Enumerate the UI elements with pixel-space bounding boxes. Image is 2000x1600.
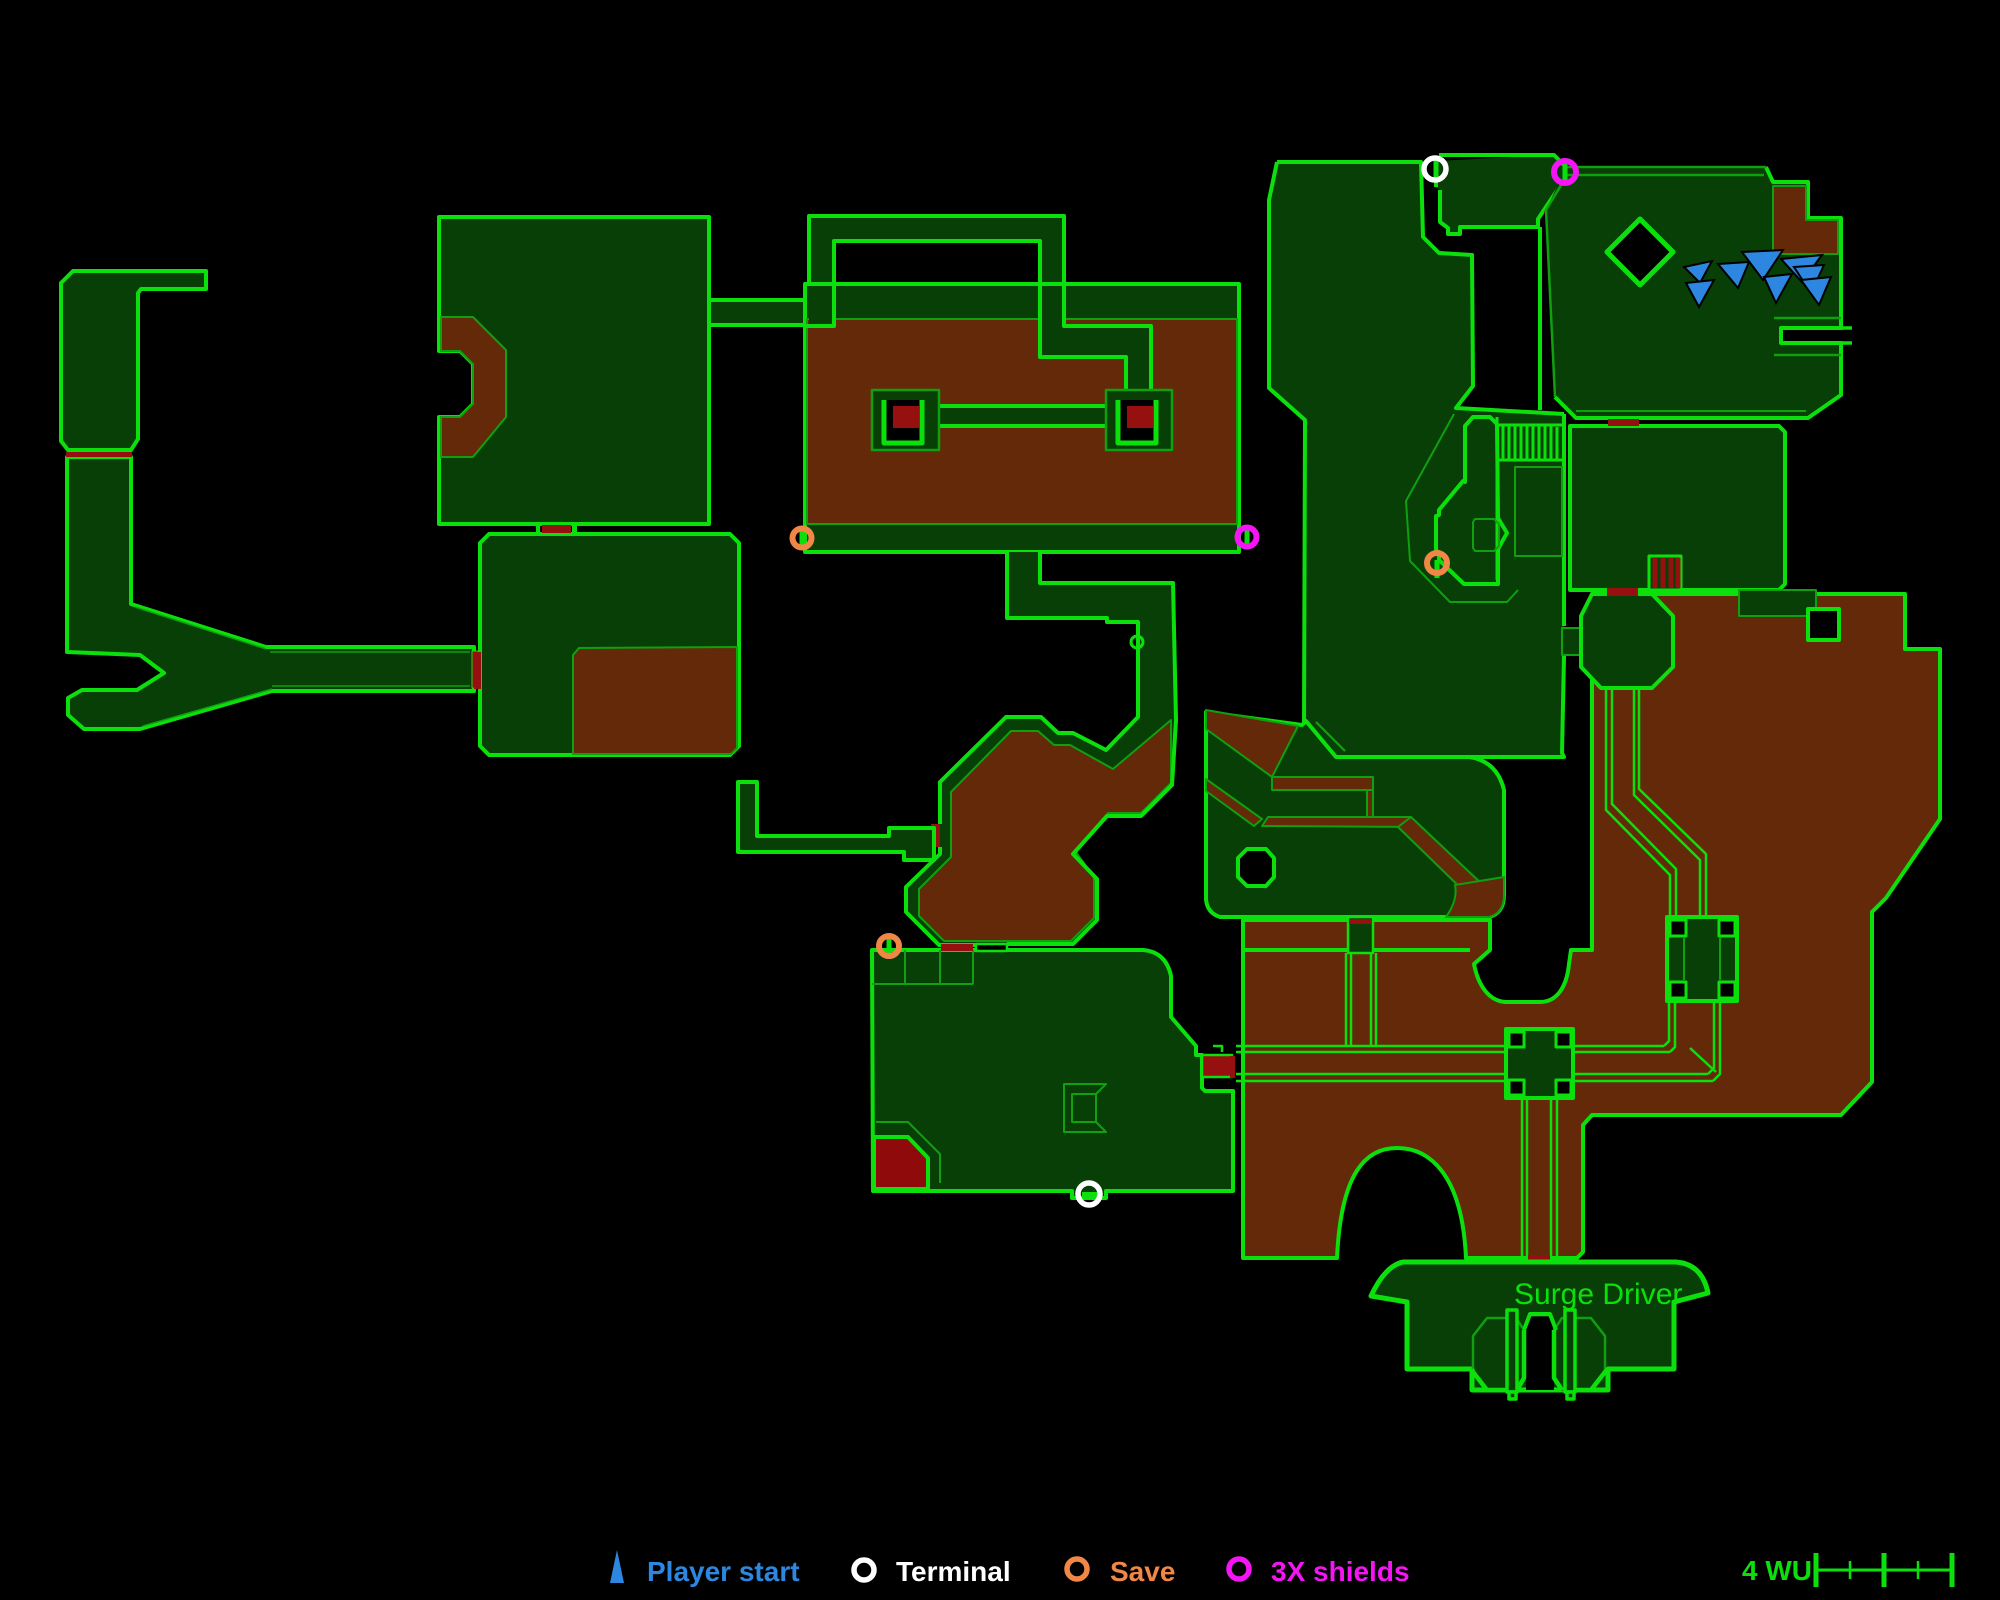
svg-text:Player start: Player start <box>647 1556 800 1587</box>
svg-text:3X shields: 3X shields <box>1271 1556 1410 1587</box>
svg-text:Surge Driver: Surge Driver <box>1514 1278 1682 1311</box>
svg-text:4 WU: 4 WU <box>1742 1555 1812 1586</box>
svg-text:Terminal: Terminal <box>896 1556 1011 1587</box>
svg-text:Save: Save <box>1110 1556 1175 1587</box>
